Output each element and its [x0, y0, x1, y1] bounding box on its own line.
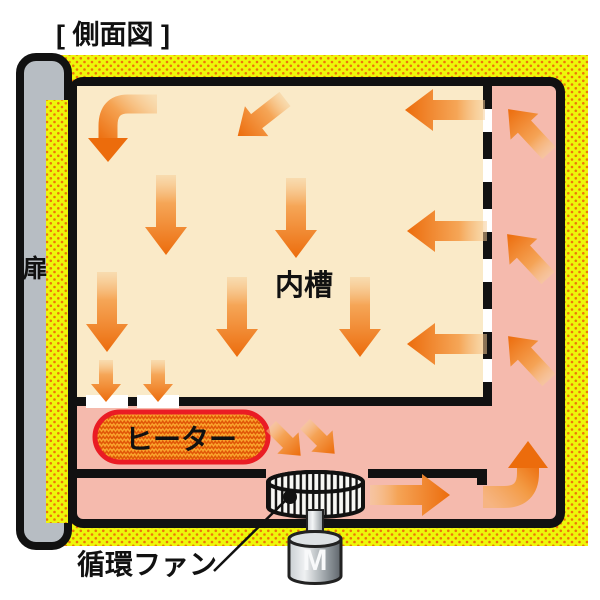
heater-compartment-wall-right: [368, 469, 486, 478]
heater-compartment-wall-left: [77, 469, 266, 478]
motor-label: M: [303, 544, 328, 577]
diagram-canvas: [ 側面図 ] 扉 ヒーター 内槽: [0, 0, 600, 600]
heater-label: ヒーター: [125, 424, 237, 455]
door-label: 扉: [22, 254, 47, 283]
side-view-diagram: [ 側面図 ] 扉 ヒーター 内槽: [0, 0, 600, 600]
circulation-fan-label: 循環ファン: [77, 549, 217, 580]
door-insulation-strip: [46, 100, 68, 523]
heater-compartment-wall-end: [477, 469, 487, 485]
inner-chamber-label: 内槽: [275, 269, 333, 302]
fan-top: [268, 472, 363, 492]
diagram-title: [ 側面図 ]: [56, 20, 170, 50]
motor: M: [289, 532, 341, 584]
